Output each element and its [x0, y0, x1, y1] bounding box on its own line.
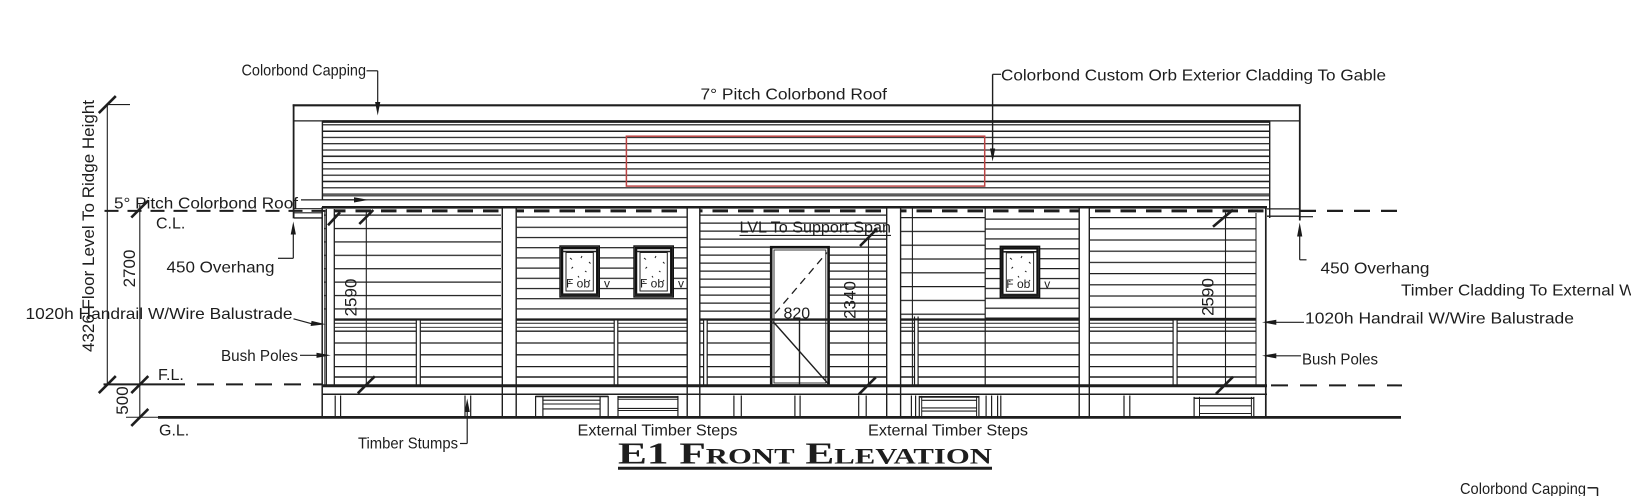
svg-text:500: 500 — [113, 386, 132, 414]
svg-text:2340: 2340 — [841, 281, 860, 319]
svg-text:v: v — [678, 277, 684, 291]
svg-text:Bush Poles: Bush Poles — [221, 348, 298, 365]
svg-text:C.L.: C.L. — [156, 216, 185, 233]
svg-text:2590: 2590 — [342, 279, 361, 317]
svg-text:G.L.: G.L. — [159, 423, 189, 440]
svg-text:4326 Floor Level To Ridge Heig: 4326 Floor Level To Ridge Height — [79, 100, 98, 352]
svg-text:7° Pitch Colorbond Roof: 7° Pitch Colorbond Roof — [701, 87, 888, 104]
svg-text:2590: 2590 — [1199, 278, 1218, 316]
svg-text:F ob: F ob — [640, 277, 664, 291]
svg-text:Colorbond Capping: Colorbond Capping — [242, 63, 367, 80]
svg-text:F ob: F ob — [566, 277, 590, 291]
svg-text:450 Overhang: 450 Overhang — [167, 260, 275, 277]
svg-text:450 Overhang: 450 Overhang — [1321, 261, 1430, 278]
svg-text:Timber Cladding To External Wa: Timber Cladding To External Wa — [1401, 283, 1631, 300]
svg-text:1020h Handrail W/Wire Balustra: 1020h Handrail W/Wire Balustrade — [1305, 311, 1574, 328]
svg-text:1020h Handrail W/Wire Balustra: 1020h Handrail W/Wire Balustrade — [26, 306, 293, 323]
svg-text:Timber Stumps: Timber Stumps — [358, 436, 458, 453]
svg-text:5° Pitch Colorbond Roof: 5° Pitch Colorbond Roof — [114, 196, 299, 213]
svg-text:Colorbond Capping: Colorbond Capping — [1460, 481, 1586, 496]
svg-text:F ob: F ob — [1006, 277, 1030, 291]
svg-text:LVL To Support Span: LVL To Support Span — [740, 220, 892, 237]
svg-text:v: v — [1044, 277, 1050, 291]
svg-text:F.L.: F.L. — [158, 367, 184, 384]
svg-text:2700: 2700 — [120, 250, 139, 288]
svg-text:v: v — [604, 277, 610, 291]
svg-text:E1 Front Elevation: E1 Front Elevation — [618, 436, 992, 471]
svg-text:Bush Poles: Bush Poles — [1302, 352, 1378, 369]
svg-text:Colorbond Custom Orb Exterior: Colorbond Custom Orb Exterior Cladding T… — [1001, 68, 1386, 85]
